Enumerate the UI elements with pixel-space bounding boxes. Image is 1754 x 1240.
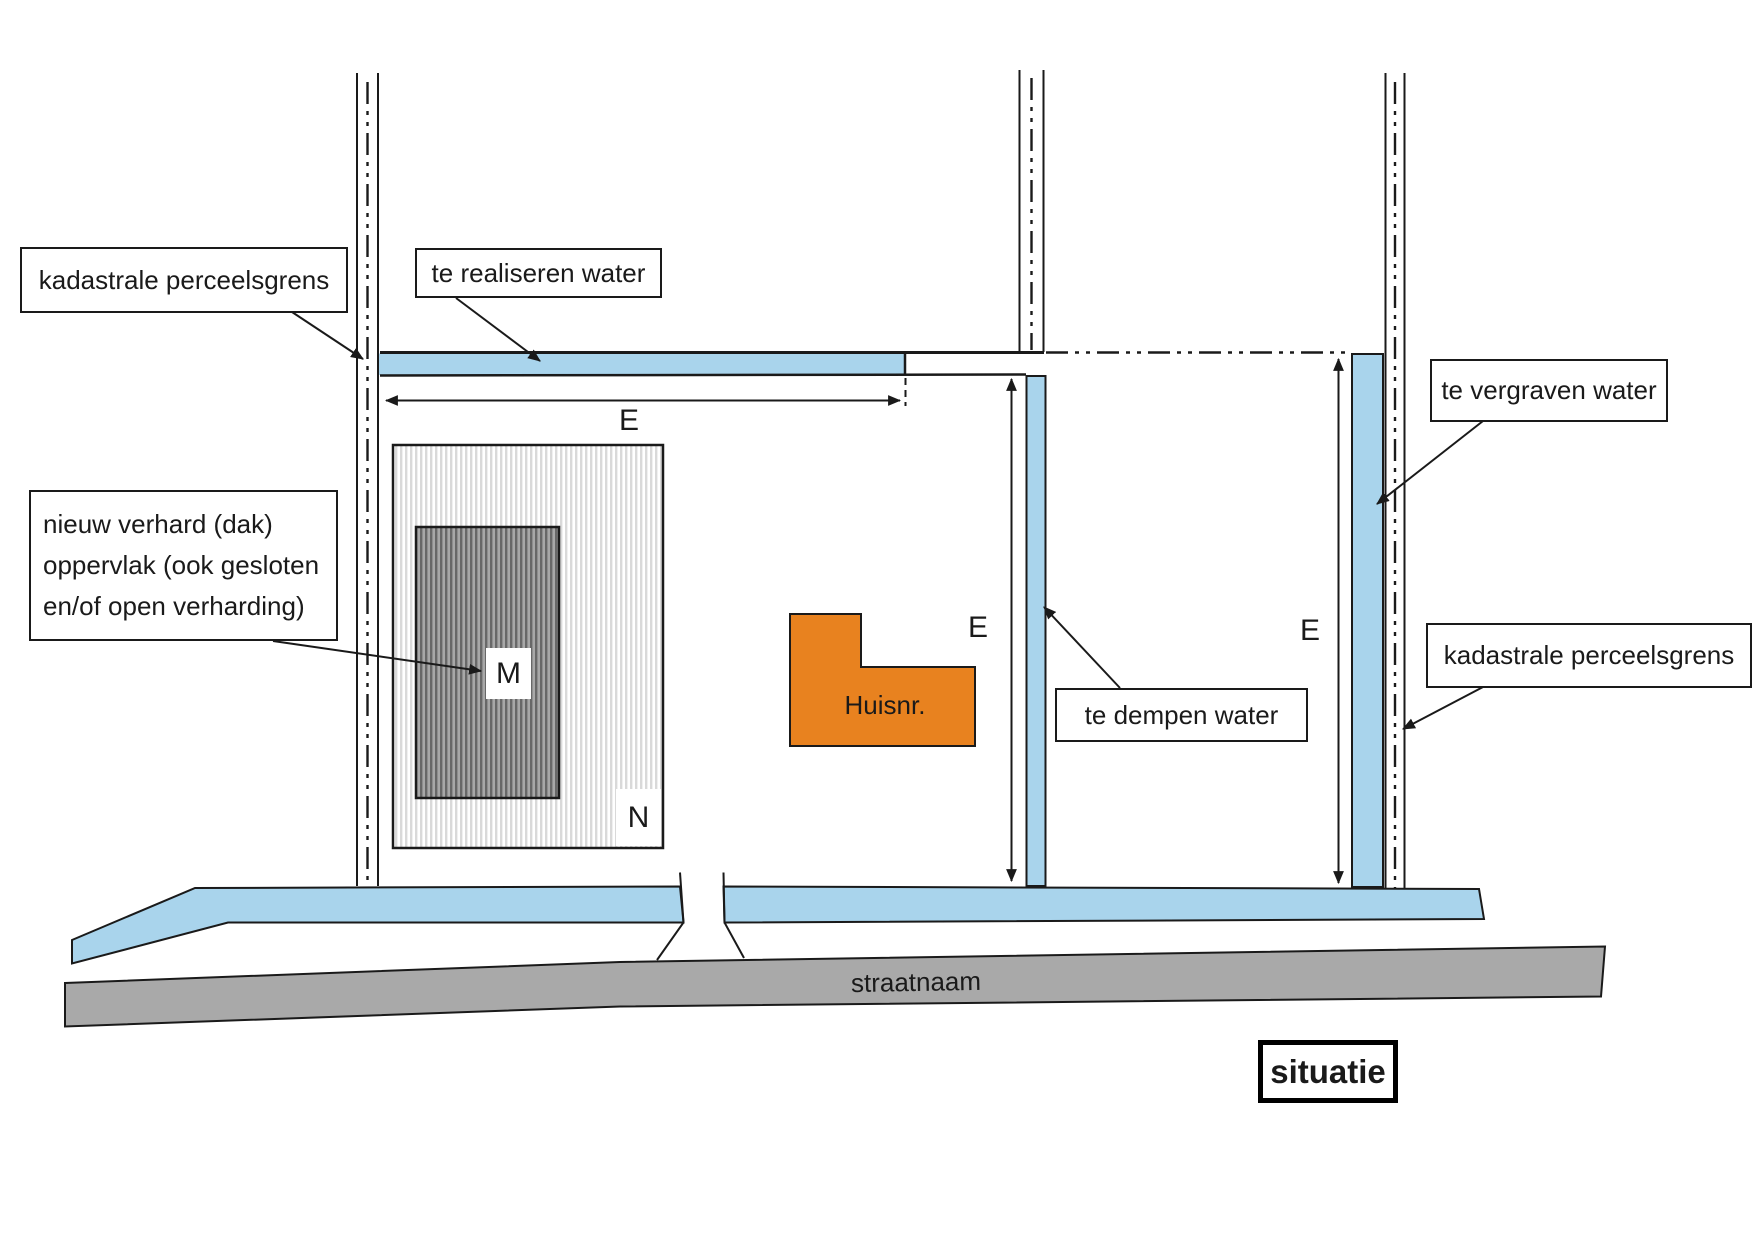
building-label: Huisnr. bbox=[795, 680, 975, 730]
arrow-parcel-right bbox=[1403, 687, 1483, 729]
mark-roof: M bbox=[486, 648, 531, 699]
roadside-ditch-right bbox=[724, 887, 1485, 923]
mark-paved: N bbox=[616, 789, 661, 846]
street-label: straatnaam bbox=[806, 962, 1027, 1002]
arrow-parcel-left bbox=[292, 312, 363, 359]
label-paved-surface-line1: nieuw verhard (dak) bbox=[43, 504, 336, 545]
dimension-label-middle: E bbox=[958, 610, 998, 646]
roadside-ditch-left bbox=[72, 887, 684, 964]
label-paved-surface: nieuw verhard (dak) oppervlak (ook geslo… bbox=[29, 490, 338, 641]
arrow-water-excavate bbox=[1377, 421, 1483, 504]
water-new-strip bbox=[379, 354, 905, 376]
dimension-label-right: E bbox=[1290, 613, 1330, 649]
situation-drawing: kadastrale perceelsgrens te realiseren w… bbox=[0, 0, 1754, 1240]
label-water-excavate: te vergraven water bbox=[1430, 359, 1668, 422]
arrow-water-fill bbox=[1044, 607, 1120, 688]
label-parcel-boundary-left: kadastrale perceelsgrens bbox=[20, 247, 348, 313]
label-water-fill: te dempen water bbox=[1055, 688, 1308, 742]
water-fill-strip bbox=[1027, 376, 1046, 886]
label-water-new: te realiseren water bbox=[415, 248, 662, 298]
label-paved-surface-line3: en/of open verharding) bbox=[43, 586, 336, 627]
label-paved-surface-line2: oppervlak (ook gesloten bbox=[43, 545, 336, 586]
drawing-title: situatie bbox=[1258, 1040, 1398, 1103]
water-excavate-strip bbox=[1352, 354, 1383, 887]
parcel-boundary-left-lines bbox=[357, 73, 378, 888]
parcel-boundary-middle-lines bbox=[1020, 70, 1044, 352]
parcel-boundary-right-lines bbox=[1386, 73, 1405, 888]
dimension-label-top: E bbox=[609, 403, 649, 439]
label-parcel-boundary-right: kadastrale perceelsgrens bbox=[1426, 623, 1752, 688]
